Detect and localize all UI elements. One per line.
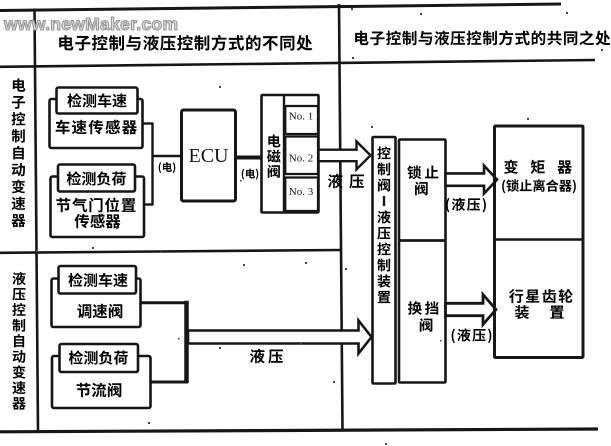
- svg-text:No. 1: No. 1: [289, 110, 313, 122]
- svg-text:No. 3: No. 3: [289, 186, 314, 198]
- svg-text:No. 2: No. 2: [289, 153, 313, 165]
- svg-text:ECU: ECU: [189, 145, 230, 167]
- svg-text:www.newMaker.com: www.newMaker.com: [3, 14, 178, 34]
